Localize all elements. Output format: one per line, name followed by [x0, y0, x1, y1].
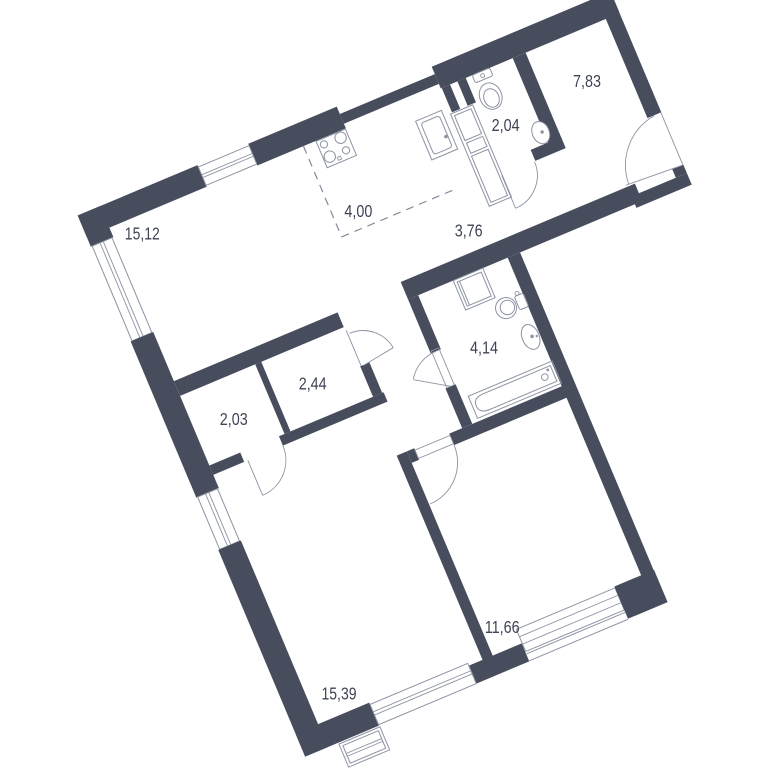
svg-text:11,66: 11,66: [485, 617, 520, 637]
svg-text:3,76: 3,76: [455, 220, 483, 240]
svg-text:15,12: 15,12: [125, 224, 160, 244]
svg-text:2,04: 2,04: [492, 115, 520, 135]
svg-text:4,14: 4,14: [470, 338, 498, 358]
svg-text:2,03: 2,03: [220, 409, 248, 429]
svg-text:2,44: 2,44: [299, 374, 327, 394]
svg-text:15,39: 15,39: [322, 684, 357, 704]
svg-text:4,00: 4,00: [344, 201, 372, 221]
svg-text:7,83: 7,83: [573, 71, 601, 91]
